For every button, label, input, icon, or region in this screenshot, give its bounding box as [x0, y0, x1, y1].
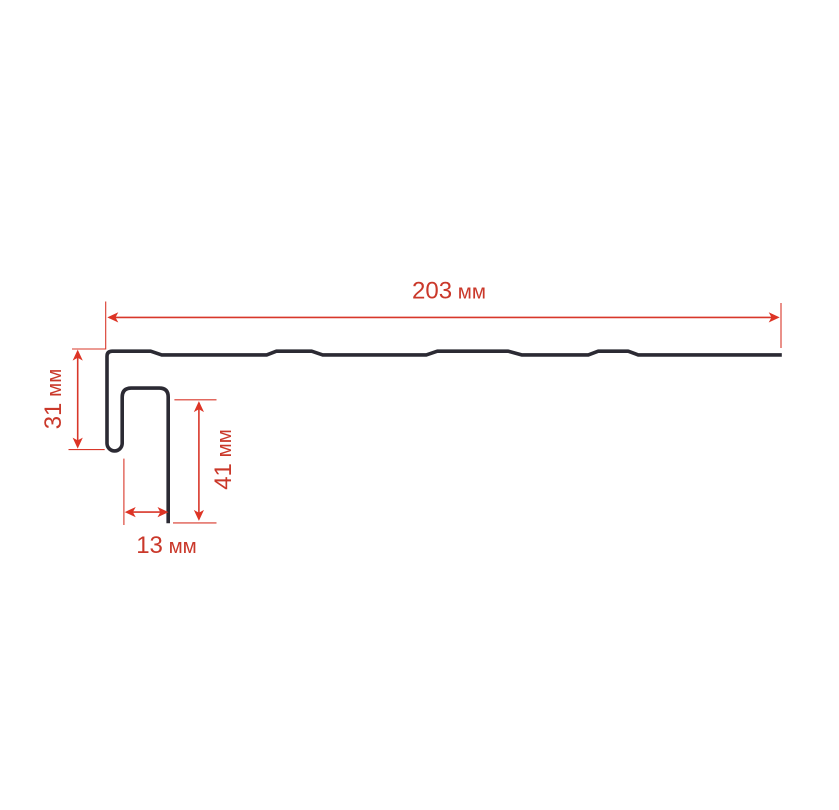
svg-text:13 мм: 13 мм [136, 532, 197, 559]
svg-text:203 мм: 203 мм [412, 277, 486, 304]
svg-text:41 мм: 41 мм [210, 429, 237, 490]
svg-text:31 мм: 31 мм [40, 369, 67, 430]
